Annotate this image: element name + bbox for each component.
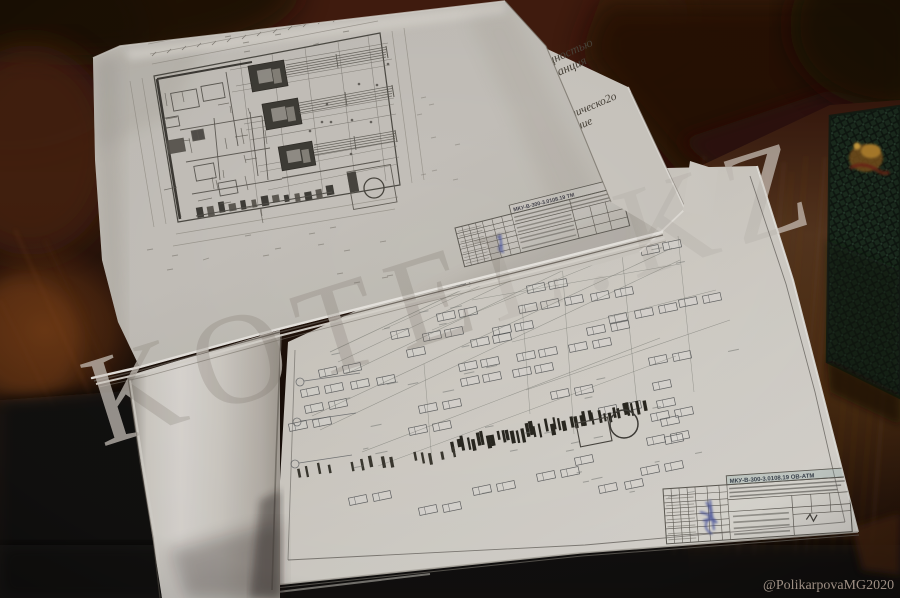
svg-text:@PolikarpovaMG2020: @PolikarpovaMG2020	[763, 578, 894, 593]
